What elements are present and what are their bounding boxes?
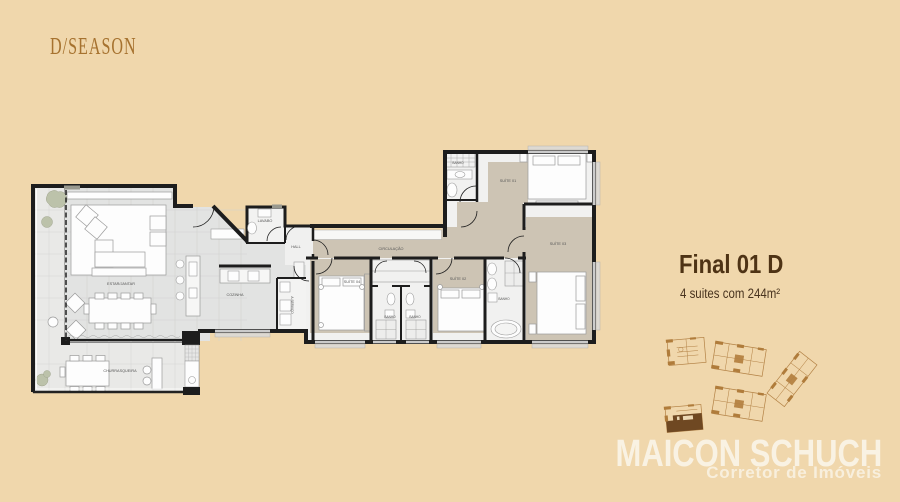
svg-text:SUÍTE 04: SUÍTE 04 [344, 280, 360, 284]
svg-text:A.SERVIÇO: A.SERVIÇO [290, 296, 294, 314]
svg-text:LAVABO: LAVABO [258, 219, 273, 223]
svg-text:SUÍTE 02: SUÍTE 02 [450, 277, 466, 281]
svg-text:BANHO: BANHO [409, 315, 421, 319]
svg-text:CIRCULAÇÃO: CIRCULAÇÃO [379, 246, 404, 251]
svg-text:BANHO: BANHO [384, 315, 396, 319]
svg-text:BANHO: BANHO [452, 161, 464, 165]
svg-text:HALL: HALL [291, 245, 301, 249]
svg-text:BANHO: BANHO [498, 297, 510, 301]
svg-text:SUÍTE 01: SUÍTE 01 [500, 179, 516, 183]
svg-text:ESTAR/JANTAR: ESTAR/JANTAR [107, 282, 135, 286]
svg-text:COZINHA: COZINHA [226, 293, 244, 297]
svg-text:SUÍTE 03: SUÍTE 03 [550, 242, 566, 246]
svg-text:CHURRASQUEIRA: CHURRASQUEIRA [103, 369, 137, 373]
